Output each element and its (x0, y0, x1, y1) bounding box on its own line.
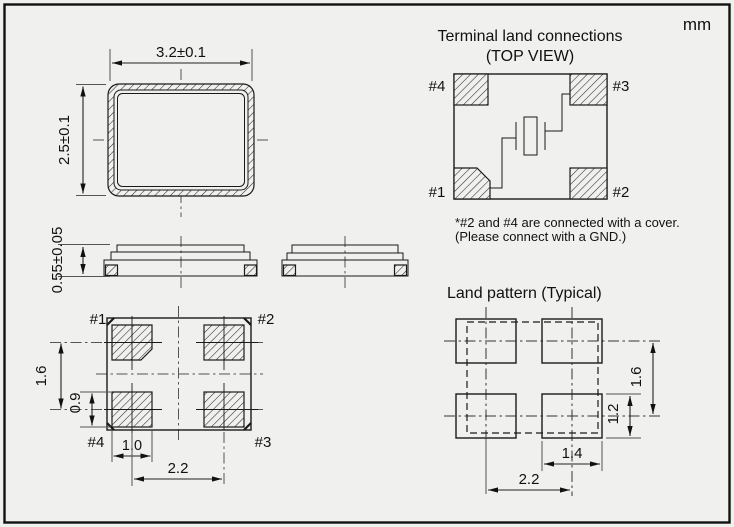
land-dim-column-pitch: 2.2 (488, 471, 570, 490)
terminal-note-line1: *#2 and #4 are connected with a cover. (455, 215, 680, 230)
side-side-pad-right (395, 265, 407, 276)
terminal-title: Terminal land connections (438, 28, 623, 45)
side-front-pad-right (245, 265, 257, 276)
land-dim-pad-width-label: 1.4 (562, 445, 583, 462)
land-pattern-centerlines (444, 307, 660, 496)
package-side-view-side (282, 236, 408, 290)
terminal-pad-1-label: #1 (429, 184, 446, 201)
crystal-electrode-plates (516, 122, 545, 150)
package-top-view: 3.2±0.1 2.5±0.1 (56, 44, 269, 217)
terminal-pad-2 (570, 168, 607, 199)
dim-column-pitch: 2.2 (132, 433, 222, 486)
terminal-pad-1 (454, 168, 490, 199)
bottom-pad-4-label: #4 (88, 434, 105, 451)
dim-thickness: 0.55±0.05 (49, 227, 110, 294)
bottom-pad-1-label: #1 (90, 311, 107, 328)
units-label: mm (683, 15, 711, 34)
engineering-drawing-page: mm 3.2±0.1 2.5±0.1 0.55±0.05 (0, 0, 734, 527)
terminal-note-line2: (Please connect with a GND.) (455, 229, 626, 244)
terminal-pad-3 (570, 74, 607, 105)
bottom-pad-2-label: #2 (258, 311, 275, 328)
terminal-pad-4-label: #4 (429, 78, 446, 95)
terminal-land-connections: Terminal land connections (TOP VIEW) #4 … (429, 28, 680, 244)
dim-pad-height-label: 0.9 (67, 393, 84, 414)
land-dim-row-pitch-label: 1.6 (628, 367, 645, 388)
terminal-subtitle: (TOP VIEW) (486, 48, 574, 65)
land-dim-row-pitch: 1.6 (628, 343, 653, 414)
terminal-pad-3-label: #3 (613, 78, 630, 95)
dim-width-label: 3.2±0.1 (156, 44, 206, 61)
terminal-pad-4 (454, 74, 488, 105)
package-side-view-front: 0.55±0.05 (49, 227, 257, 294)
land-pattern-title: Land pattern (Typical) (447, 285, 602, 302)
dim-column-pitch-label: 2.2 (168, 460, 189, 477)
crystal-element (524, 117, 537, 155)
land-dim-pad-height-label: 1.2 (605, 404, 622, 425)
terminal-pad-2-label: #2 (613, 184, 630, 201)
dim-row-pitch-label: 1.6 (33, 366, 50, 387)
dim-row-pitch: 1.6 (33, 344, 61, 409)
crystal-symbol (490, 94, 570, 188)
dim-thickness-label: 0.55±0.05 (49, 227, 66, 294)
bottom-pad-3-label: #3 (255, 434, 272, 451)
package-lid (114, 90, 248, 190)
side-front-pad-left (106, 265, 118, 276)
land-dim-column-pitch-label: 2.2 (519, 471, 540, 488)
land-pattern: Land pattern (Typical) 1.6 1.2 1.4 2.2 (444, 285, 660, 496)
drawing-canvas: mm 3.2±0.1 2.5±0.1 0.55±0.05 (0, 0, 734, 527)
package-bottom-view: #1 #2 #4 #3 1.6 0.9 1.0 2.2 (33, 306, 274, 486)
crystal-lead-wires (490, 94, 570, 188)
dim-height-label: 2.5±0.1 (56, 115, 73, 165)
side-side-pad-left (284, 265, 296, 276)
